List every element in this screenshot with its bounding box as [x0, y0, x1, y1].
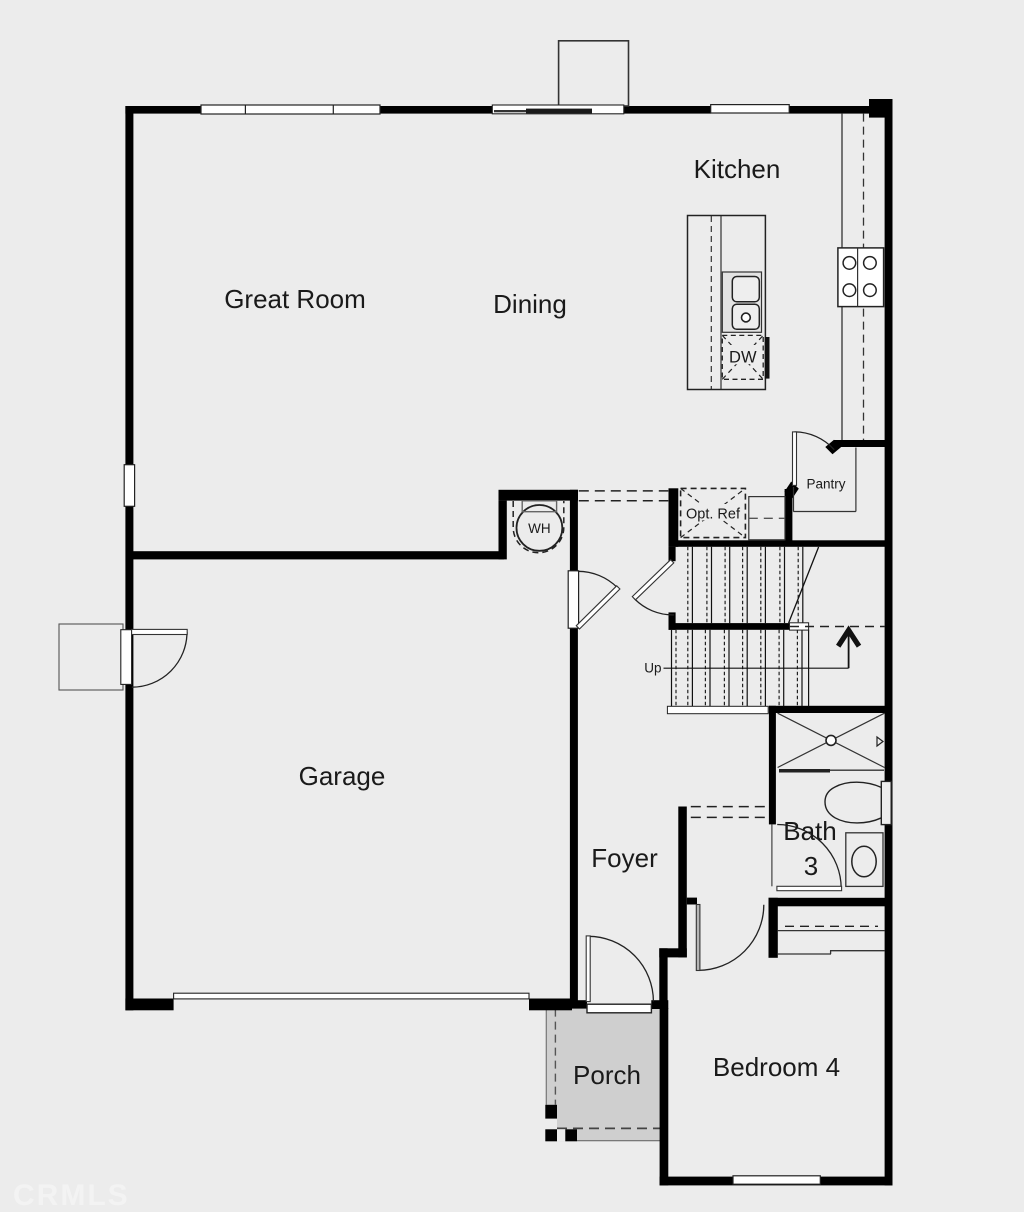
svg-text:DW: DW: [729, 349, 757, 367]
svg-text:Foyer: Foyer: [591, 843, 658, 873]
svg-text:Dining: Dining: [493, 289, 567, 319]
svg-text:Pantry: Pantry: [806, 476, 845, 491]
svg-text:3: 3: [804, 851, 818, 881]
svg-text:Kitchen: Kitchen: [694, 154, 781, 184]
svg-text:Garage: Garage: [299, 761, 386, 791]
svg-text:Porch: Porch: [573, 1060, 641, 1090]
svg-text:Up: Up: [644, 661, 661, 676]
svg-text:Bedroom 4: Bedroom 4: [713, 1052, 840, 1082]
svg-text:WH: WH: [528, 521, 551, 536]
svg-text:CRMLS: CRMLS: [13, 1179, 130, 1212]
svg-text:Great Room: Great Room: [224, 284, 366, 314]
svg-text:Bath: Bath: [783, 816, 837, 846]
svg-text:Opt. Ref: Opt. Ref: [686, 507, 741, 523]
